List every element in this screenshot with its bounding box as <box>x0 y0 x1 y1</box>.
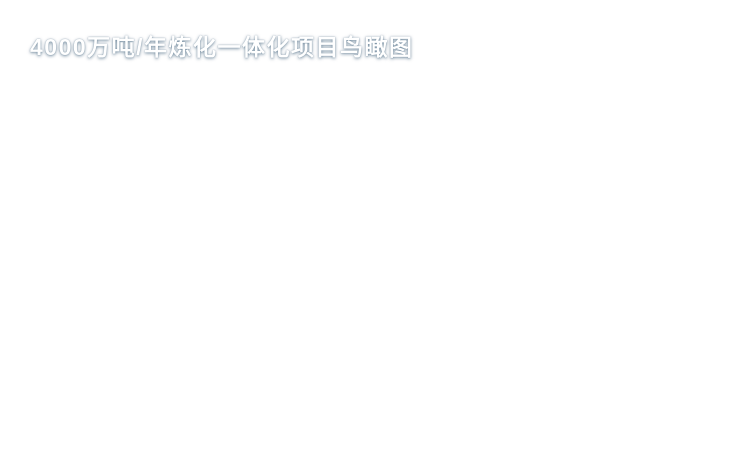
birdseye-rendering: 4000万吨/年炼化一体化项目鸟瞰图 <box>0 0 740 458</box>
project-title: 4000万吨/年炼化一体化项目鸟瞰图 <box>30 28 414 62</box>
scene-canvas <box>0 0 740 458</box>
